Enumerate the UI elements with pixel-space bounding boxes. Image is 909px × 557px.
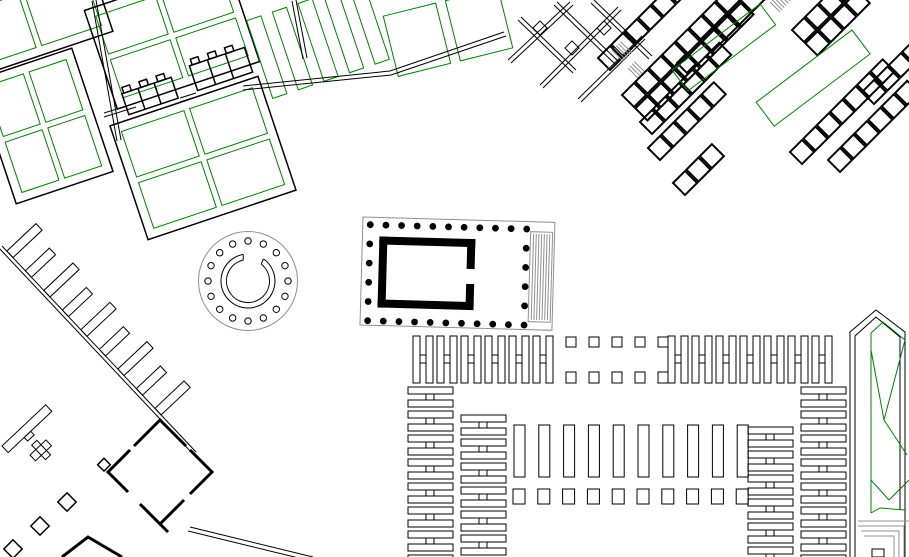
housing-grid — [0, 0, 513, 240]
street-bottom — [188, 527, 313, 557]
column-dot — [521, 322, 528, 329]
ruin-court — [62, 420, 212, 557]
garden-quad-block — [383, 0, 512, 76]
tholos-column — [205, 278, 211, 284]
wall-buttress — [99, 327, 129, 356]
wall-buttress — [118, 342, 153, 376]
column-dot — [365, 298, 372, 305]
pillar-diamond — [58, 493, 76, 511]
column-dot — [492, 225, 499, 232]
garden-plot — [190, 88, 268, 154]
courtyard-pillar-row — [513, 489, 748, 504]
column-dot — [523, 226, 530, 233]
pillar-diamond — [4, 540, 22, 557]
column-dot — [364, 317, 371, 324]
tholos-column — [273, 250, 279, 256]
tholos-column — [260, 241, 266, 247]
courtyard-stalls — [514, 425, 748, 477]
garden-plot — [207, 139, 285, 205]
housing-block — [0, 48, 113, 204]
garden-plot — [96, 0, 168, 54]
wall-buttress — [25, 248, 55, 277]
tholos-columns — [205, 238, 291, 324]
east-boundary-wall — [850, 310, 905, 557]
garden-plot — [48, 116, 102, 179]
tholos-column — [285, 278, 291, 284]
tholos-column — [245, 238, 251, 244]
column-dot — [395, 318, 402, 325]
tholos-column — [208, 262, 214, 268]
column-dot — [427, 319, 434, 326]
tholos-outer-wall — [199, 232, 298, 331]
room-band — [648, 82, 726, 160]
tholos-column — [273, 306, 279, 312]
column-dot — [414, 223, 421, 230]
ruin-knob — [98, 458, 111, 471]
wall-buttress — [7, 224, 42, 258]
tholos — [199, 232, 298, 331]
column-dot — [367, 221, 374, 228]
column-dot — [398, 222, 405, 229]
room-band — [622, 0, 754, 120]
tholos-column — [217, 250, 223, 256]
column-dot — [474, 320, 481, 327]
tholos-column — [229, 315, 235, 321]
housing-block — [110, 76, 296, 239]
column-dot — [508, 225, 515, 232]
column-dot — [476, 224, 483, 231]
tholos-column — [229, 241, 235, 247]
room-band — [598, 0, 689, 70]
pillar-diamond — [31, 517, 49, 535]
tholos-column — [245, 318, 251, 324]
tholos-column — [282, 262, 288, 268]
courtyard-pier-ladders — [408, 336, 846, 557]
east-garden — [871, 322, 909, 513]
garden-plot — [161, 0, 233, 32]
column-dot — [411, 318, 418, 325]
column-dot — [523, 245, 530, 252]
temple-cella-walls — [377, 236, 475, 310]
column-dot — [382, 222, 389, 229]
tholos-column — [217, 306, 223, 312]
column-dot — [489, 321, 496, 328]
garden-plot — [139, 162, 217, 228]
garden-plot — [110, 40, 182, 98]
tholos-column — [282, 293, 288, 299]
column-dot — [505, 321, 512, 328]
column-dot — [365, 279, 372, 286]
column-dot — [366, 260, 373, 267]
stair-hatch — [770, 0, 791, 12]
temple-stylobate — [360, 217, 555, 330]
column-dot — [522, 283, 529, 290]
wall-buttress — [44, 263, 79, 297]
garden-plot — [0, 0, 36, 67]
garden-plot — [29, 60, 83, 123]
column-dot — [429, 223, 436, 230]
tholos-inner-wall-inner — [226, 260, 269, 302]
site-plan-canvas — [0, 0, 909, 557]
column-dot — [521, 302, 528, 309]
column-dot — [445, 223, 452, 230]
garden-plot — [176, 18, 248, 76]
wall-buttress — [136, 366, 166, 395]
column-dot — [380, 318, 387, 325]
row-houses — [120, 42, 253, 115]
garden-plot — [0, 74, 40, 137]
room-band — [862, 13, 909, 104]
column-dot — [461, 224, 468, 231]
wall-buttress — [62, 287, 92, 316]
tholos-inner-wall-outer — [221, 254, 275, 308]
housing-block — [84, 0, 259, 109]
room-band — [673, 144, 724, 195]
corner-structure-walls — [872, 549, 884, 557]
wall-buttress — [155, 381, 190, 415]
tholos-column — [208, 293, 214, 299]
pillar-diamonds — [4, 493, 76, 557]
diagonal-complex — [598, 0, 909, 195]
temple-plan — [360, 217, 555, 330]
garden-plot — [5, 130, 59, 193]
column-dot — [458, 320, 465, 327]
wall-fragments-left — [2, 405, 56, 465]
garden-plot — [121, 111, 199, 177]
tholos-column — [260, 315, 266, 321]
column-dot — [442, 319, 449, 326]
site-plan-page — [0, 0, 909, 557]
temple-ramp — [528, 232, 553, 323]
room-band — [792, 0, 870, 55]
wall-buttress — [81, 302, 116, 336]
column-dot — [522, 264, 529, 271]
column-dot — [366, 240, 373, 247]
courtyard-gate-pillars — [566, 337, 668, 383]
housing-streets — [92, 0, 506, 141]
